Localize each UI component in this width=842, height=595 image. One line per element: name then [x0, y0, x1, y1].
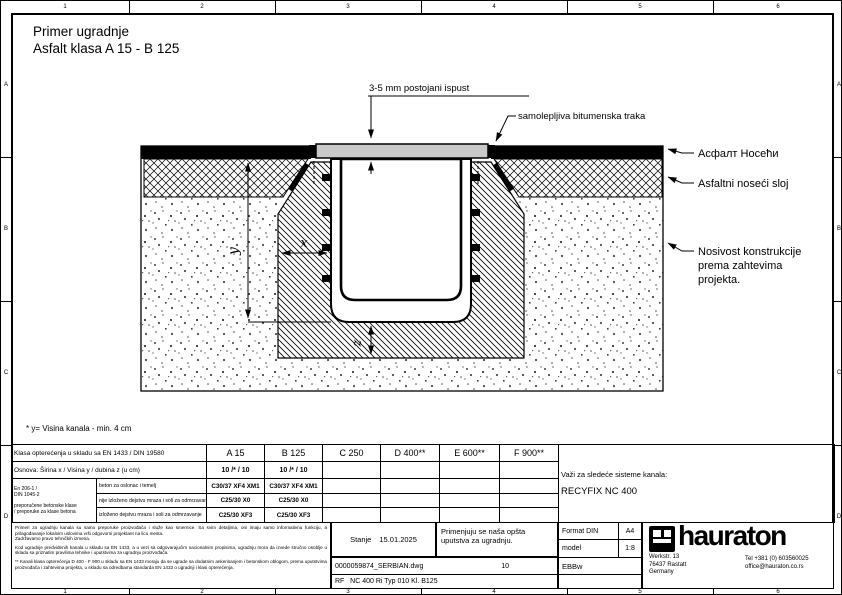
label-asphalt-base: Asfaltni noseći sloj — [698, 178, 789, 190]
format-label: Format DIN — [559, 523, 619, 539]
ruler-letter: D — [835, 512, 842, 522]
label-asphalt-surface: Асфалт Носећи — [698, 148, 778, 160]
callout-gap-label: 3-5 mm postojani ispust — [369, 83, 470, 94]
disclaimer-paragraph: Primeri za ugradnju kanala su samo prepo… — [15, 525, 327, 542]
product-designation: RF NC 400 Ri Typ 010 Kl. B125 — [331, 574, 558, 589]
load-class-table: Klasa opterećenja u skladu sa EN 1433 / … — [11, 444, 835, 523]
dimension-y-label: y — [226, 246, 242, 256]
class-d400: D 400** — [381, 445, 440, 462]
channel-interior — [341, 159, 461, 300]
ruler-letter: C — [835, 368, 842, 378]
foundation-a15: 10 /* / 10 — [207, 462, 265, 479]
foundation-b125: 10 /* / 10 — [265, 462, 323, 479]
disclaimer-paragraph: Kod ugradnje predviđenih kanala u skladu… — [15, 545, 327, 556]
load-class-label: Klasa opterećenja u skladu sa EN 1433 / … — [12, 445, 207, 462]
title-line-1: Primer ugradnje — [33, 23, 179, 40]
foundation-label: Osnova: Širina x / Visina y / dubina z (… — [12, 462, 207, 479]
file-cell: 0000059874_SERBIAN.dwg 10 — [331, 557, 558, 575]
class-b125: B 125 — [265, 445, 323, 462]
dimension-z-label: z — [350, 339, 365, 347]
callout-tape-label: samolepljiva bitumenska traka — [518, 111, 646, 122]
concrete-row-label: nije izloženo dejstvu mraza i soli za od… — [97, 494, 207, 508]
scale-cell: model 1:8 — [558, 539, 642, 558]
title-line-2: Asfalt klasa A 15 - B 125 — [33, 40, 179, 57]
concrete-row-label: beton za oslonac i temelj — [97, 479, 207, 494]
concrete-row-label: izloženo dejstvu mraza i soli za odmrzav… — [97, 508, 207, 523]
disclaimer-paragraph: ** Kanali klasa opterećenja D 400 - F 90… — [15, 559, 327, 570]
svg-text:prema zahtevima: prema zahtevima — [698, 260, 783, 272]
ruler-letter: B — [835, 224, 842, 234]
ruler-letter: A — [835, 80, 842, 90]
class-e600: E 600** — [440, 445, 500, 462]
format-cell: Format DIN A4 — [558, 522, 642, 540]
scale-value: 1:8 — [619, 545, 641, 552]
ruler-number: 6 — [768, 2, 788, 12]
drawing-sheet: 1 2 3 4 5 6 1 2 3 4 5 6 A B C D A B C D — [0, 0, 842, 595]
brand-contact: Tel +381 (0) 603560025 office@hauraton.c… — [745, 556, 809, 571]
status-date: 15.01.2025 — [379, 535, 417, 544]
code-cell: EBBw — [558, 557, 642, 575]
status-label: Stanje — [350, 535, 371, 544]
label-bearing-structure-leader — [668, 243, 694, 251]
grating-endcap-left — [309, 145, 316, 158]
ruler-letter: B — [2, 224, 10, 234]
callout-tape-leader — [496, 116, 516, 141]
installation-cross-section: y x z 3-5 mm postojani ispust samoleplji… — [126, 79, 826, 424]
validity-box: Važi za sledeće sisteme kanala: RECYFIX … — [559, 445, 835, 523]
svg-text:Nosivost konstrukcije: Nosivost konstrukcije — [698, 246, 801, 258]
ruler-number: 3 — [338, 2, 358, 12]
asphalt-surface-left — [141, 146, 311, 159]
brand-box: hauraton Werkstr. 13 76437 Rastatt Germa… — [642, 522, 834, 589]
validity-label: Važi za sledeće sisteme kanala: — [561, 470, 832, 479]
class-f900: F 900** — [500, 445, 559, 462]
concrete-standard-cell: En 206-1 / DIN 1045-2 preporučene betons… — [12, 479, 97, 523]
disclaimer-box: Primeri za ugradnju kanala su samo prepo… — [11, 522, 331, 589]
hauraton-wordmark: hauraton — [678, 520, 786, 552]
ruler-letter: D — [2, 512, 10, 522]
ruler-number: 5 — [630, 2, 650, 12]
empty-cell — [558, 574, 642, 589]
ruler-number: 4 — [484, 2, 504, 12]
label-bearing-structure: Nosivost konstrukcije prema zahtevima pr… — [698, 246, 801, 286]
label-asphalt-surface-leader — [668, 149, 694, 153]
ruler-letter: A — [2, 80, 10, 90]
scale-label: model — [559, 540, 619, 557]
status-cell: Stanje 15.01.2025 — [331, 522, 436, 557]
ruler-letter: C — [2, 368, 10, 378]
table-row: Klasa opterećenja u skladu sa EN 1433 / … — [12, 445, 835, 462]
class-c250: C 250 — [323, 445, 381, 462]
sheet-number: 10 — [501, 563, 509, 570]
ruler-number: 2 — [192, 2, 212, 12]
asphalt-surface-right — [491, 146, 663, 159]
general-note-cell: Primenjuju se naša opšta uputstva za ugr… — [436, 522, 558, 557]
svg-text:projekta.: projekta. — [698, 274, 740, 286]
file-name: 0000059874_SERBIAN.dwg — [335, 563, 423, 570]
format-value: A4 — [619, 528, 641, 535]
dimension-x-label: x — [300, 236, 308, 251]
ruler-number: 1 — [55, 2, 75, 12]
validity-system: RECYFIX NC 400 — [561, 486, 832, 497]
grating — [316, 144, 488, 158]
label-asphalt-base-leader — [668, 177, 694, 183]
footnote: * y= Visina kanala - min. 4 cm — [26, 424, 131, 433]
hauraton-logo-icon — [649, 526, 675, 552]
brand-address: Werkstr. 13 76437 Rastatt Germany — [649, 554, 686, 577]
class-a15: A 15 — [207, 445, 265, 462]
grating-endcap-right — [488, 145, 495, 158]
drawing-title: Primer ugradnje Asfalt klasa A 15 - B 12… — [33, 23, 179, 57]
